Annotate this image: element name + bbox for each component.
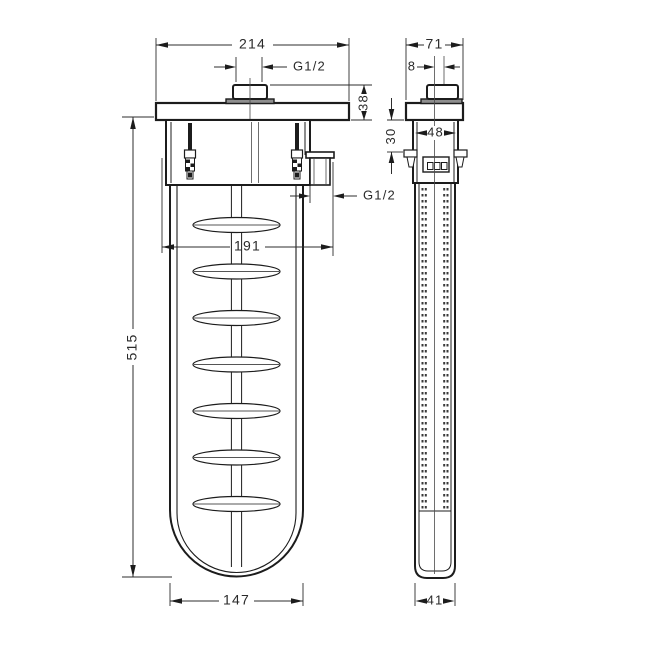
front-outlet-stub — [306, 152, 334, 185]
dim-body-width: 147 — [223, 592, 250, 608]
side-tube-inner — [419, 183, 451, 571]
dim-center-distance: 191 — [234, 238, 261, 254]
dim-overall-width: 214 — [239, 36, 266, 52]
dim-mount-range: 30 — [383, 128, 398, 145]
dim-overall-depth: 71 — [426, 36, 444, 52]
technical-drawing-page: 214 G1/2 38 G1/2 191 — [0, 0, 650, 650]
dim-housing-depth: 48 — [427, 124, 444, 139]
dim-deck-button-height: 38 — [355, 94, 370, 111]
dim-overall-height: 515 — [124, 334, 140, 361]
side-button — [427, 85, 458, 99]
dim-top-thread: G1/2 — [293, 58, 326, 73]
dim-button-offset: 8 — [408, 58, 416, 73]
dim-body-depth: 41 — [427, 592, 444, 607]
dim-outlet-thread: G1/2 — [363, 187, 396, 202]
overflow-slots — [193, 218, 280, 512]
side-tube-outer — [415, 183, 455, 578]
dimension-drawing: 214 G1/2 38 G1/2 191 — [0, 0, 650, 650]
front-deck-plate — [156, 103, 349, 120]
front-view — [156, 78, 349, 577]
side-connector-block — [423, 157, 449, 172]
